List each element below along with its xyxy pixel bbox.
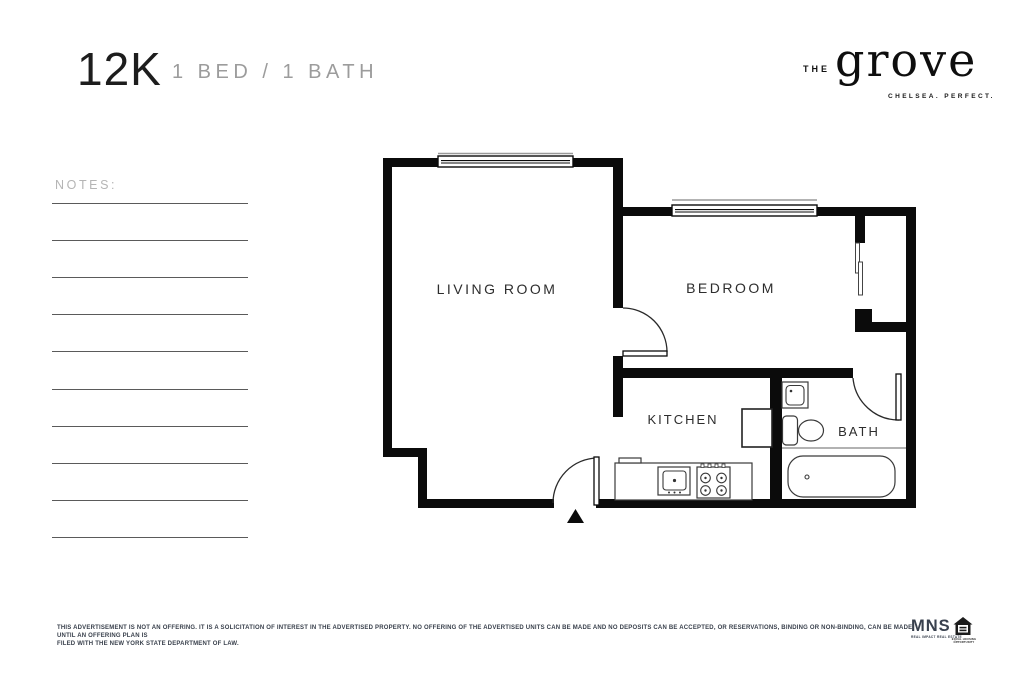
living-room-window (438, 154, 573, 168)
bedroom-window (672, 200, 817, 216)
entry-arrow (567, 509, 584, 523)
equal-housing-icon (951, 616, 975, 638)
mns-logo: MNS (911, 618, 951, 635)
stove (697, 464, 730, 498)
living-room-label: LIVING ROOM (437, 281, 558, 297)
bath-door (853, 374, 901, 420)
kitchen-sink (658, 467, 690, 495)
bedroom-label: BEDROOM (686, 280, 776, 296)
legal-disclaimer-line2: FILED WITH THE NEW YORK STATE DEPARTMENT… (57, 640, 917, 648)
equal-housing-caption: EQUAL HOUSING OPPORTUNITY (948, 638, 980, 644)
bath-sink (782, 382, 808, 408)
bathtub (788, 456, 895, 497)
legal-disclaimer: THIS ADVERTISEMENT IS NOT AN OFFERING. I… (57, 624, 917, 648)
bedroom-door (623, 308, 667, 356)
mns-tagline: REAL IMPACT REAL ESTATE (911, 635, 951, 639)
toilet (783, 416, 824, 445)
bath-label: BATH (838, 424, 880, 439)
refrigerator (742, 409, 772, 447)
floor-plan: LIVING ROOM BEDROOM KITCHEN BATH (0, 0, 1024, 680)
entry-door (553, 457, 599, 505)
kitchen-label: KITCHEN (647, 412, 718, 427)
legal-disclaimer-line1: THIS ADVERTISEMENT IS NOT AN OFFERING. I… (57, 624, 917, 640)
closet-sliding-door (856, 243, 863, 295)
